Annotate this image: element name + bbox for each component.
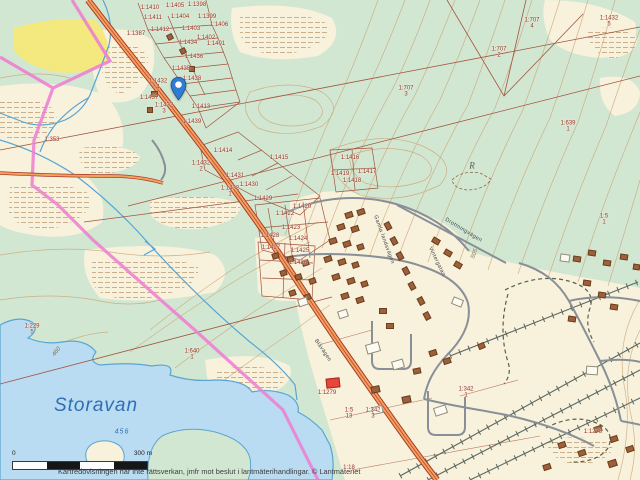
attribution-text: Kartredovisningen har inte rättsverkan, … <box>58 467 360 476</box>
scale-start-label: 0 <box>12 450 16 457</box>
scale-segment <box>13 462 47 469</box>
pin-hole <box>175 81 182 88</box>
pin-body <box>171 77 186 100</box>
scale-distance-label: 300 m <box>134 450 152 457</box>
map-canvas[interactable]: 1:14101:14051:13981:14111:14041:13991:13… <box>0 0 640 480</box>
location-pin[interactable] <box>170 76 187 101</box>
map-vector-layer <box>0 0 640 480</box>
